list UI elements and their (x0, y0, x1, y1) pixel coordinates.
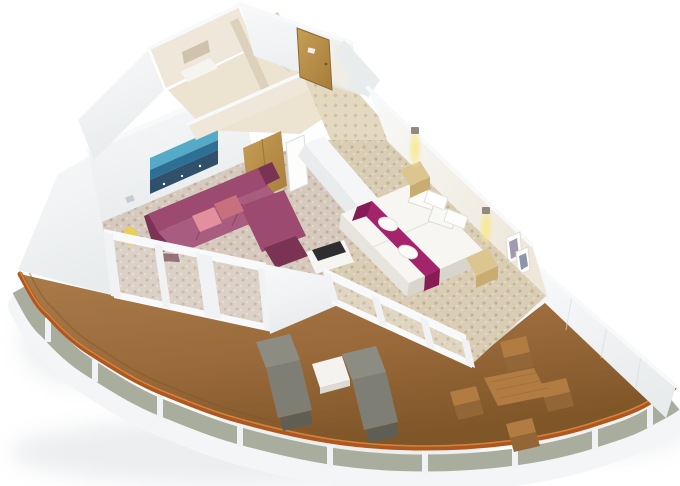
sconce-fixture (482, 207, 490, 214)
entry-door-handle (325, 63, 328, 66)
railing-post (92, 358, 98, 382)
artwork-speckle (181, 175, 183, 177)
railing-post (237, 423, 243, 447)
railing-post (157, 394, 163, 418)
railing-post (327, 443, 333, 467)
dining-shadow (482, 403, 550, 421)
railing-post (647, 404, 653, 428)
artwork-speckle (163, 183, 165, 185)
sconce-fixture (411, 127, 419, 134)
wall-sconce-1 (408, 127, 422, 169)
artwork-speckle (199, 165, 201, 167)
wall-sconce-2 (479, 207, 493, 249)
floorplan-render (0, 0, 680, 486)
suite-floorplan-svg (0, 0, 680, 486)
railing-post (422, 450, 428, 474)
railing-post (592, 426, 598, 450)
